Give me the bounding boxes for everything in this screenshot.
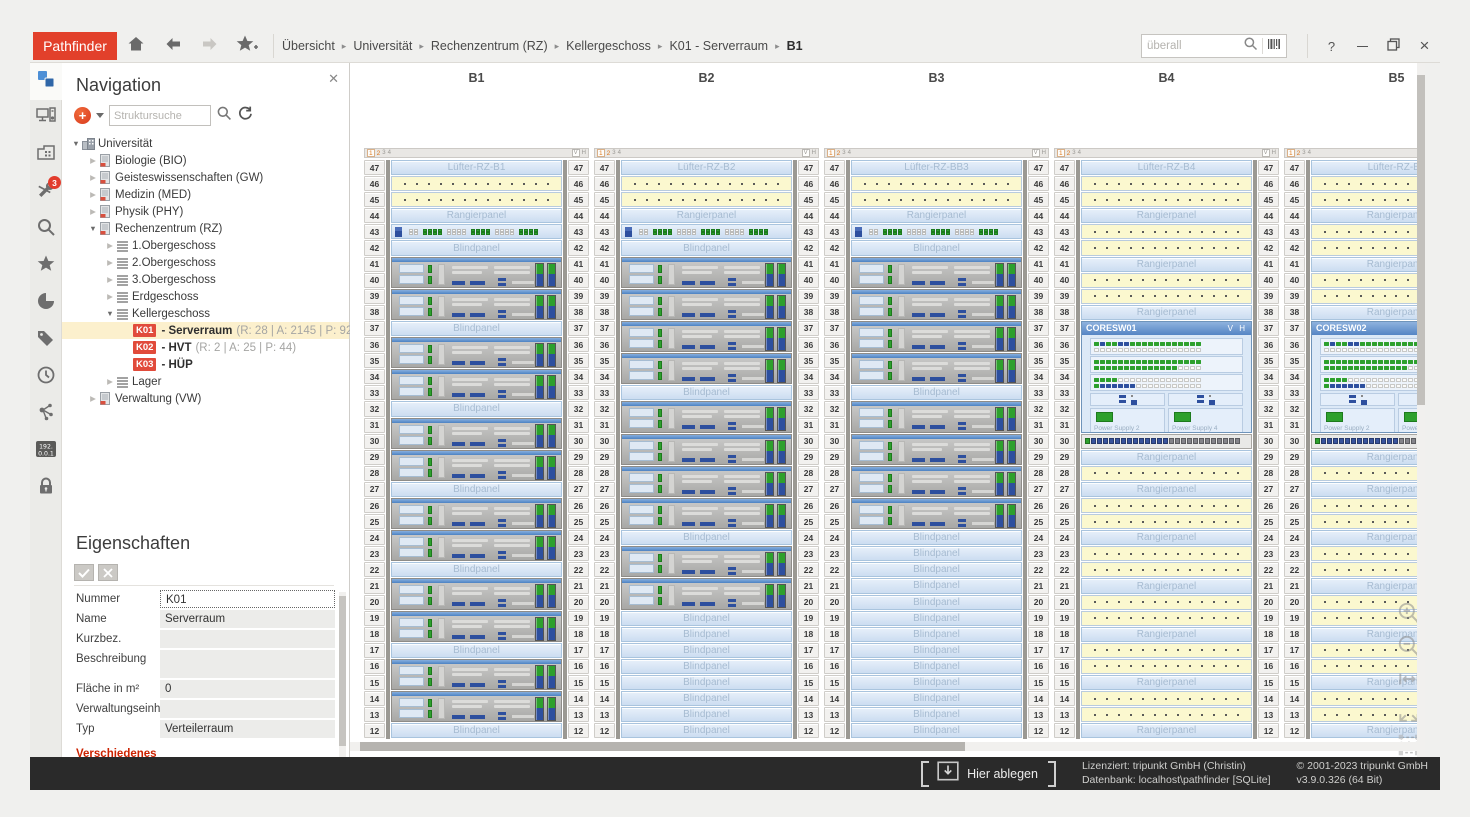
rack-unit-fan[interactable]: Lüfter-RZ-B1 [391, 160, 562, 175]
add-node-button[interactable]: + [74, 107, 91, 124]
rack-unit-patch[interactable] [1311, 514, 1425, 529]
back-button[interactable] [154, 30, 191, 63]
property-row: Verwaltungseinheit [62, 700, 349, 720]
rack-unit-server[interactable] [851, 257, 1022, 288]
help-button[interactable]: ? [1316, 30, 1347, 63]
rack-unit-server[interactable] [621, 257, 792, 288]
rack-view-tab[interactable]: 4 [1078, 150, 1081, 156]
rack-unit-blind[interactable]: Blindpanel [621, 530, 792, 545]
rack-unit-blind[interactable]: Blindpanel [851, 530, 1022, 545]
tree-expander-icon[interactable]: ▶ [104, 292, 116, 301]
rack-unit-patch[interactable] [1081, 595, 1252, 610]
breadcrumb-separator-icon: ▸ [342, 41, 347, 52]
rack-unit-blind[interactable]: Blindpanel [851, 562, 1022, 577]
sidebar-item-navigation[interactable] [30, 63, 62, 100]
rack-unit-patch[interactable] [1081, 498, 1252, 513]
rack-unit-server[interactable] [621, 498, 792, 529]
rack-unit-blind[interactable]: Blindpanel [851, 611, 1022, 626]
tree-item[interactable]: ▶3.Obergeschoss [62, 271, 349, 288]
tree-item[interactable]: ▼Kellergeschoss [62, 305, 349, 322]
rack-unit-patch[interactable] [1311, 273, 1425, 288]
supervisor-module[interactable] [1168, 393, 1243, 406]
module-sidebar: 3 192.0.0.1 [30, 63, 62, 757]
rack-view-tab[interactable]: 2 [837, 150, 841, 157]
tree-item[interactable]: ▶Medizin (MED) [62, 186, 349, 203]
horizontal-scrollbar[interactable] [350, 742, 1417, 751]
rack-unit-patch[interactable] [1311, 498, 1425, 513]
rack-unit-blind[interactable]: Blindpanel [621, 723, 792, 738]
tree-item-label: 1.Obergeschoss [132, 240, 216, 252]
tree-expander-icon[interactable]: ▼ [87, 224, 99, 233]
property-value[interactable]: K01 [160, 590, 335, 608]
properties-scrollbar[interactable] [339, 592, 346, 770]
rack-unit-patch[interactable] [1311, 289, 1425, 304]
tree-expander-icon[interactable]: ▶ [87, 173, 99, 182]
rack-unit-server[interactable] [621, 353, 792, 384]
rack-unit-blind[interactable]: Blindpanel [851, 627, 1022, 642]
rack-view-tab[interactable]: 1 [827, 149, 835, 157]
rack-unit-patch[interactable] [1311, 176, 1425, 191]
forward-button[interactable] [191, 30, 228, 63]
rack-unit-rangier[interactable]: Rangierpanel [1081, 257, 1252, 272]
tree-expander-icon[interactable]: ▶ [87, 190, 99, 199]
tree-item[interactable]: ▼Rechenzentrum (RZ) [62, 220, 349, 237]
breadcrumb-item[interactable]: Rechenzentrum (RZ) [431, 39, 548, 53]
unit-number: 14 [594, 691, 615, 706]
unit-number: 33 [1284, 385, 1305, 400]
add-node-dropdown-icon[interactable] [96, 113, 104, 118]
structure-search-icon[interactable] [216, 105, 232, 126]
rack-unit-server[interactable] [851, 401, 1022, 432]
rack-unit-rangier[interactable]: Rangierpanel [1311, 482, 1425, 497]
rack-view-tab[interactable]: 3 [842, 150, 845, 156]
rack-unit-server[interactable] [391, 257, 562, 288]
rack-unit-blind[interactable]: Blindpanel [621, 240, 792, 255]
unit-number: 33 [364, 385, 385, 400]
rack-view-tab[interactable]: 2 [607, 150, 611, 157]
sidebar-item-history[interactable] [30, 359, 62, 396]
rack-view-tab[interactable]: 1 [1287, 149, 1295, 157]
tree-item[interactable]: ▶Erdgeschoss [62, 288, 349, 305]
rack-unit-patch[interactable] [1081, 240, 1252, 255]
breadcrumb-item[interactable]: Übersicht [282, 39, 335, 53]
add-favorite-button[interactable] [228, 30, 265, 63]
unit-number: 39 [798, 289, 819, 304]
tree-expander-icon[interactable]: ▶ [87, 394, 99, 403]
unit-number: 44 [594, 208, 615, 223]
rack-unit-server[interactable] [621, 289, 792, 320]
tree-expander-icon[interactable]: ▶ [87, 156, 99, 165]
search-icon[interactable] [1243, 36, 1258, 56]
unit-number: 36 [1284, 337, 1305, 352]
rack-unit-blind[interactable]: Blindpanel [391, 240, 562, 255]
rack-unit-server[interactable] [391, 289, 562, 320]
breadcrumb-item[interactable]: Kellergeschoss [566, 39, 651, 53]
tree-item[interactable]: ▼Universität [62, 135, 349, 152]
hardware-icon [36, 106, 56, 131]
rack-unit-server[interactable] [391, 450, 562, 481]
rack-unit-patch[interactable] [1081, 273, 1252, 288]
unit-number: 39 [1054, 289, 1075, 304]
rack-unit-patch[interactable] [621, 192, 792, 207]
rack-view-tab[interactable]: 3 [1302, 150, 1305, 156]
rack-unit-blind[interactable]: Blindpanel [851, 723, 1022, 738]
unit-number: 31 [568, 418, 589, 433]
rack-unit-rangier[interactable]: Rangierpanel [851, 208, 1022, 223]
rack-unit-patch[interactable] [1081, 643, 1252, 658]
unit-number: 12 [1284, 723, 1305, 738]
rack-view-tab[interactable]: 2 [1067, 150, 1071, 157]
rack-view-tab[interactable]: 4 [388, 150, 391, 156]
rack-rear-toggle[interactable]: H [582, 150, 586, 156]
rack-view-tab[interactable]: 4 [848, 150, 851, 156]
unit-number: 21 [1258, 578, 1279, 593]
toolbar-separator [1307, 34, 1308, 58]
rack-unit-patch[interactable] [1081, 611, 1252, 626]
rack-unit-rangier[interactable]: Rangierpanel [1311, 257, 1425, 272]
power-supply[interactable]: Power Supply 2 [1320, 408, 1395, 433]
sidebar-item-reports[interactable] [30, 285, 62, 322]
rack-unit-patch[interactable] [1081, 546, 1252, 561]
line-card[interactable] [1320, 374, 1425, 391]
rack-unit-rangier[interactable]: Rangierpanel [1311, 305, 1425, 320]
rack-unit-blind[interactable]: Blindpanel [851, 691, 1022, 706]
tree-expander-icon[interactable]: ▶ [104, 275, 116, 284]
property-value[interactable]: Serverraum [160, 610, 335, 628]
unit-number: 47 [1284, 160, 1305, 175]
rack-unit-server[interactable] [851, 434, 1022, 465]
power-supply[interactable]: Power Supply 4 [1168, 408, 1243, 433]
unit-number: 27 [1258, 482, 1279, 497]
unit-number: 14 [1258, 691, 1279, 706]
rack-unit-blind[interactable]: Blindpanel [621, 643, 792, 658]
rack-unit-switch[interactable] [391, 224, 562, 239]
rack-unit-blind[interactable]: Blindpanel [621, 691, 792, 706]
rack-unit-rangier[interactable]: Rangierpanel [1081, 305, 1252, 320]
rack-unit-coresw[interactable]: CORESW02V HPower Supply 2Power Supply 4 [1311, 321, 1425, 433]
rack-view-tab[interactable]: 1 [1057, 149, 1065, 157]
rack-unit-coresw[interactable]: CORESW01V HPower Supply 2Power Supply 4 [1081, 321, 1252, 433]
rack-unit-rangier[interactable]: Rangierpanel [1081, 482, 1252, 497]
rack-unit-server[interactable] [391, 611, 562, 642]
rack-front-toggle[interactable]: V [1262, 149, 1270, 157]
rack-front-toggle[interactable]: V [572, 149, 580, 157]
line-card[interactable] [1090, 374, 1243, 391]
rack-view-tab[interactable]: 3 [1072, 150, 1075, 156]
rack-unit-server[interactable] [391, 418, 562, 449]
sidebar-item-ip-addresses[interactable]: 192.0.0.1 [30, 433, 62, 470]
rack-unit-blind[interactable]: Blindpanel [621, 627, 792, 642]
rack-unit-rangier[interactable]: Rangierpanel [391, 208, 562, 223]
sidebar-item-room-plan[interactable] [30, 137, 62, 174]
tree-expander-icon[interactable]: ▶ [104, 377, 116, 386]
rack-view-tab[interactable]: 3 [382, 150, 385, 156]
sidebar-item-tags[interactable] [30, 322, 62, 359]
tree-item[interactable]: ▶Lager [62, 373, 349, 390]
rack-unit-patch[interactable] [1081, 514, 1252, 529]
rack-unit-rangier[interactable]: Rangierpanel [1081, 578, 1252, 593]
rack-unit-patch[interactable] [1081, 707, 1252, 722]
rack-unit-patch[interactable] [1311, 240, 1425, 255]
unit-number: 45 [1258, 192, 1279, 207]
unit-number: 28 [594, 466, 615, 481]
rack-unit-rangier[interactable]: Rangierpanel [1081, 627, 1252, 642]
line-card[interactable] [1320, 338, 1425, 355]
rack-unit-patch[interactable] [1081, 192, 1252, 207]
unit-number: 28 [1054, 466, 1075, 481]
rack-unit-switch[interactable] [621, 224, 792, 239]
rack-unit-server[interactable] [621, 546, 792, 577]
rack-unit-server[interactable] [391, 578, 562, 609]
sidebar-item-tools[interactable]: 3 [30, 174, 62, 211]
rack-unit-blind[interactable]: Blindpanel [391, 401, 562, 416]
unit-number: 16 [1258, 659, 1279, 674]
refresh-icon[interactable] [237, 105, 253, 126]
panel-close-button[interactable]: ✕ [328, 71, 339, 87]
rack-unit-patch[interactable] [1311, 224, 1425, 239]
rack-unit-patch[interactable] [1311, 546, 1425, 561]
rack-unit-server[interactable] [851, 353, 1022, 384]
rack-unit-patch[interactable] [1081, 659, 1252, 674]
unit-number: 34 [594, 369, 615, 384]
rack-unit-patch[interactable] [1311, 192, 1425, 207]
property-value[interactable]: 0 [160, 680, 335, 698]
drop-zone[interactable]: Hier ablegen [921, 761, 1056, 787]
rack-unit-blind[interactable]: Blindpanel [391, 723, 562, 738]
sidebar-item-favorites[interactable] [30, 248, 62, 285]
rack-unit-server[interactable] [621, 578, 792, 609]
supervisor-module[interactable] [1090, 393, 1165, 406]
core-switch-name: CORESW02 [1316, 323, 1367, 333]
rack-unit-patch[interactable] [391, 176, 562, 191]
rack-unit-server[interactable] [851, 321, 1022, 352]
titlebar: Pathfinder Übersicht▸Universität▸Rechenz… [30, 30, 1440, 63]
structure-search-input[interactable] [109, 105, 211, 126]
rack-view-tab[interactable]: 4 [1308, 150, 1311, 156]
rack-rear-toggle[interactable]: H [1042, 150, 1046, 156]
rack-view-tab[interactable]: 2 [377, 150, 381, 157]
rack-unit-portstrip[interactable] [1311, 434, 1425, 449]
view-toggle-buttons[interactable]: V H [1228, 324, 1247, 333]
property-label: Nummer [62, 590, 160, 610]
discard-button[interactable] [98, 564, 118, 581]
rack-unit-blind[interactable]: Blindpanel [621, 675, 792, 690]
rack-unit-blind[interactable]: Blindpanel [851, 240, 1022, 255]
rack-unit-blind[interactable]: Blindpanel [851, 385, 1022, 400]
rack-unit-rangier[interactable]: Rangierpanel [1081, 530, 1252, 545]
breadcrumb-item[interactable]: Universität [353, 39, 412, 53]
tree-item-label: Physik (PHY) [115, 206, 183, 218]
tree-expander-icon[interactable]: ▶ [104, 258, 116, 267]
rack-unit-server[interactable] [391, 498, 562, 529]
global-search[interactable] [1141, 34, 1287, 58]
tree-item[interactable]: ▶Biologie (BIO) [62, 152, 349, 169]
unit-number: 43 [1028, 224, 1049, 239]
line-card[interactable] [1090, 338, 1243, 355]
rack-unit-rangier[interactable]: Rangierpanel [1311, 530, 1425, 545]
close-button[interactable]: × [1409, 30, 1440, 63]
sidebar-item-hardware[interactable] [30, 100, 62, 137]
unit-number: 22 [798, 562, 819, 577]
sidebar-item-security[interactable] [30, 470, 62, 507]
property-value[interactable] [160, 650, 335, 678]
rack-unit-blind[interactable]: Blindpanel [621, 385, 792, 400]
unit-number: 32 [364, 401, 385, 416]
unit-number: 12 [568, 723, 589, 738]
unit-numbers-right: 4746454443424140393837363534333231302928… [798, 160, 819, 739]
rack-unit-server[interactable] [621, 466, 792, 497]
line-card[interactable] [1320, 356, 1425, 373]
rack-unit-fan[interactable]: Lüfter-RZ-BB3 [851, 160, 1022, 175]
rack-unit-rangier[interactable]: Rangierpanel [1311, 450, 1425, 465]
unit-number: 13 [1284, 707, 1305, 722]
unit-number: 22 [1258, 562, 1279, 577]
rack-view-tab[interactable]: 3 [612, 150, 615, 156]
rack-view-tab[interactable]: 2 [1297, 150, 1301, 157]
rack-unit-fan[interactable]: Lüfter-RZ-B4 [1081, 160, 1252, 175]
rack-unit-server[interactable] [621, 434, 792, 465]
property-value[interactable]: Verteilerraum [160, 720, 335, 738]
rack-unit-blind[interactable]: Blindpanel [851, 595, 1022, 610]
tree-expander-icon[interactable]: ▼ [70, 139, 82, 148]
tree-item[interactable]: K01- Serverraum(R: 28 | A: 2145 | P: 927… [62, 322, 349, 339]
tree-item[interactable]: K03- HÜP [62, 356, 349, 373]
rack-unit-blind[interactable]: Blindpanel [391, 643, 562, 658]
tree-expander-icon[interactable]: ▶ [104, 241, 116, 250]
unit-number: 29 [594, 450, 615, 465]
maximize-button[interactable] [1378, 30, 1409, 63]
barcode-scan-icon[interactable] [1267, 37, 1281, 56]
rack-unit-patch[interactable] [851, 176, 1022, 191]
unit-number: 38 [1284, 305, 1305, 320]
rack-unit-rangier[interactable]: Rangierpanel [1081, 208, 1252, 223]
rack-unit-patch[interactable] [391, 192, 562, 207]
tree-expander-icon[interactable]: ▼ [104, 309, 116, 318]
property-value[interactable] [160, 630, 335, 648]
rack-unit-patch[interactable] [851, 192, 1022, 207]
rack-unit-rangier[interactable]: Rangierpanel [621, 208, 792, 223]
unit-number: 27 [824, 482, 845, 497]
rack-unit-rangier[interactable]: Rangierpanel [1081, 723, 1252, 738]
rack-unit-rangier[interactable]: Rangierpanel [1081, 675, 1252, 690]
rack-unit-portstrip[interactable] [1081, 434, 1252, 449]
supervisor-module[interactable] [1320, 393, 1395, 406]
rack-unit-fan[interactable]: Lüfter-RZ-B2 [621, 160, 792, 175]
apply-button[interactable] [74, 564, 94, 581]
rack-unit-server[interactable] [621, 401, 792, 432]
tag-icon [36, 328, 56, 353]
unit-number: 31 [1028, 418, 1049, 433]
breadcrumb-item[interactable]: K01 - Serverraum [669, 39, 768, 53]
rack-unit-blind[interactable]: Blindpanel [621, 707, 792, 722]
rack-unit-blind[interactable]: Blindpanel [851, 675, 1022, 690]
sidebar-item-topology[interactable] [30, 396, 62, 433]
rack-view-tab[interactable]: 1 [597, 149, 605, 157]
rack-unit-blind[interactable]: Blindpanel [621, 611, 792, 626]
vertical-scrollbar[interactable] [1417, 63, 1425, 757]
rack-unit-patch[interactable] [1081, 289, 1252, 304]
rack-unit-rangier[interactable]: Rangierpanel [1311, 208, 1425, 223]
rack-unit-rangier[interactable]: Rangierpanel [1081, 450, 1252, 465]
power-supply[interactable]: Power Supply 2 [1090, 408, 1165, 433]
unit-number: 33 [594, 385, 615, 400]
rack-unit-blind[interactable]: Blindpanel [391, 482, 562, 497]
minimize-button[interactable] [1347, 30, 1378, 63]
rack-unit-blind[interactable]: Blindpanel [851, 659, 1022, 674]
tree-item[interactable]: ▶1.Obergeschoss [62, 237, 349, 254]
rack-unit-patch[interactable] [1081, 691, 1252, 706]
tree-item[interactable]: ▶2.Obergeschoss [62, 254, 349, 271]
unit-number: 43 [824, 224, 845, 239]
tree-item[interactable]: K02- HVT(R: 2 | A: 25 | P: 44) [62, 339, 349, 356]
property-value[interactable] [160, 700, 335, 718]
rack-unit-server[interactable] [851, 466, 1022, 497]
home-button[interactable] [117, 30, 154, 63]
rack-unit-server[interactable] [851, 289, 1022, 320]
rack-unit-blind[interactable]: Blindpanel [391, 321, 562, 336]
rack-view-tab[interactable]: 4 [618, 150, 621, 156]
line-card[interactable] [1090, 356, 1243, 373]
rack-unit-blind[interactable]: Blindpanel [851, 578, 1022, 593]
rack-unit-rangier[interactable]: Rangierpanel [1311, 578, 1425, 593]
unit-number: 40 [1028, 273, 1049, 288]
rack-unit-patch[interactable] [621, 176, 792, 191]
properties-toolbar [74, 564, 334, 586]
rack-unit-server[interactable] [391, 530, 562, 561]
rack-unit-blind[interactable]: Blindpanel [851, 643, 1022, 658]
app-logo[interactable]: Pathfinder [33, 32, 117, 60]
rack-rear-toggle[interactable]: H [1272, 150, 1276, 156]
rack-view-tab[interactable]: 1 [367, 149, 375, 157]
unit-number: 45 [568, 192, 589, 207]
rack-unit-patch[interactable] [1081, 562, 1252, 577]
rack-unit-blind[interactable]: Blindpanel [851, 707, 1022, 722]
unit-number: 35 [568, 353, 589, 368]
tree-item[interactable]: ▶Verwaltung (VW) [62, 390, 349, 407]
rack-unit-patch[interactable] [1311, 466, 1425, 481]
rack-unit-patch[interactable] [1081, 224, 1252, 239]
rack-unit-patch[interactable] [1081, 176, 1252, 191]
tree-item[interactable]: ▶Physik (PHY) [62, 203, 349, 220]
rack-unit-server[interactable] [391, 337, 562, 368]
rack-unit-patch[interactable] [1311, 562, 1425, 577]
unit-number: 22 [1054, 562, 1075, 577]
rack-unit-server[interactable] [851, 498, 1022, 529]
global-search-input[interactable] [1147, 40, 1243, 52]
unit-number: 35 [798, 353, 819, 368]
rack-unit-server[interactable] [621, 321, 792, 352]
rack-unit-server[interactable] [391, 369, 562, 400]
unit-number: 25 [1054, 514, 1075, 529]
rack-unit-server[interactable] [391, 659, 562, 690]
rack-front-toggle[interactable]: V [1032, 149, 1040, 157]
sidebar-item-search[interactable] [30, 211, 62, 248]
rack-unit-blind[interactable]: Blindpanel [391, 562, 562, 577]
rack-front-toggle[interactable]: V [802, 149, 810, 157]
rack-unit-blind[interactable]: Blindpanel [851, 546, 1022, 561]
rack-unit-blind[interactable]: Blindpanel [621, 659, 792, 674]
rack-unit-patch[interactable] [1081, 466, 1252, 481]
rack-unit-switch[interactable] [851, 224, 1022, 239]
rack-unit-server[interactable] [391, 691, 562, 722]
tree-expander-icon[interactable]: ▶ [87, 207, 99, 216]
rack-unit-fan[interactable]: Lüfter-RZ-B5 [1311, 160, 1425, 175]
unit-number: 44 [1258, 208, 1279, 223]
rack-rear-toggle[interactable]: H [812, 150, 816, 156]
unit-number: 27 [1028, 482, 1049, 497]
breadcrumb-item[interactable]: B1 [787, 39, 803, 53]
tree-item[interactable]: ▶Geisteswissenschaften (GW) [62, 169, 349, 186]
